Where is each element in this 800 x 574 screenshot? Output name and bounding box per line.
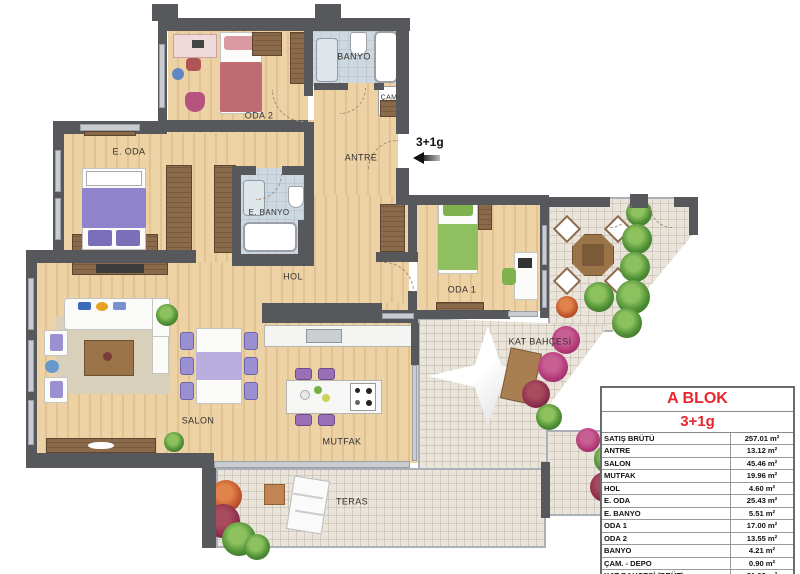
window: [508, 311, 538, 317]
plant: [164, 432, 184, 452]
armchair-seat: [50, 381, 63, 398]
row-label: KAT BAHÇESİ (BRÜT): [602, 570, 731, 574]
wall: [408, 205, 417, 254]
table-runner: [196, 352, 242, 380]
wardrobe: [478, 202, 492, 230]
room-label-kat-bahcesi: KAT BAHÇESİ: [508, 338, 571, 347]
row-label: ODA 1: [602, 520, 731, 532]
bush: [622, 224, 652, 254]
dining-chair: [180, 357, 194, 375]
row-value: 19.96 m²: [731, 470, 794, 482]
wall: [158, 18, 410, 31]
stool: [295, 368, 312, 380]
stool: [295, 414, 312, 426]
room-label-e-oda: E. ODA: [113, 148, 146, 157]
row-value: 13.12 m²: [731, 445, 794, 457]
wall: [202, 468, 216, 548]
armchair-seat: [50, 334, 63, 351]
armchair-pink: [185, 92, 205, 112]
table-row: MUTFAK19.96 m²: [602, 470, 793, 482]
table-row: ANTRE13.12 m²: [602, 445, 793, 457]
wall: [541, 462, 550, 518]
cushion: [116, 230, 140, 246]
row-value: 13.55 m²: [731, 532, 794, 544]
dining-chair: [180, 332, 194, 350]
window: [28, 340, 34, 392]
cooktop: [350, 383, 376, 411]
room-label-oda2: ODA 2: [245, 112, 274, 121]
table-row: HOL4.60 m²: [602, 482, 793, 494]
burner: [355, 388, 360, 393]
row-label: E. BANYO: [602, 507, 731, 519]
burner: [366, 400, 372, 406]
window: [55, 198, 61, 240]
shelf-unit: [152, 336, 169, 374]
blanket-oda1: [438, 224, 478, 270]
sofa-cushion: [78, 302, 91, 310]
blanket-oda2: [220, 62, 262, 112]
unit-type-title: 3+1g: [602, 412, 793, 433]
wall: [548, 197, 610, 207]
wall: [376, 252, 418, 262]
plant: [584, 282, 614, 312]
fruit: [314, 386, 322, 394]
row-value: 257.01 m²: [731, 433, 794, 445]
wall: [262, 303, 382, 323]
sideboard-decor: [88, 442, 114, 449]
row-label: ANTRE: [602, 445, 731, 457]
block-title: A BLOK: [602, 388, 793, 412]
burner: [355, 400, 360, 405]
window: [412, 365, 417, 461]
entry-arrow-trail: [424, 155, 440, 161]
wall: [232, 166, 241, 264]
room-label-salon: SALON: [182, 417, 215, 426]
room-label-mutfak: MUTFAK: [323, 438, 362, 447]
plant: [538, 352, 568, 382]
table-row: E. ODA25.43 m²: [602, 495, 793, 507]
window: [382, 313, 414, 319]
table-row: BANYO4.21 m²: [602, 545, 793, 557]
terrace-table: [264, 484, 285, 505]
row-label: BANYO: [602, 545, 731, 557]
bowl: [300, 390, 310, 400]
wall: [26, 453, 214, 468]
stool: [318, 368, 335, 380]
sliding-door: [214, 461, 410, 468]
window: [55, 150, 61, 192]
table-row: SATIŞ BRÜTÜ257.01 m²: [602, 433, 793, 445]
plant: [244, 534, 270, 560]
entry-unit-type: 3+1g: [416, 135, 444, 149]
wall: [158, 120, 308, 132]
row-label: ÇAM. - DEPO: [602, 557, 731, 569]
room-label-oda1: ODA 1: [448, 286, 477, 295]
window: [28, 400, 34, 445]
wardrobe: [252, 32, 282, 56]
window: [80, 124, 140, 131]
window: [159, 44, 165, 108]
table-row: KAT BAHÇESİ (BRÜT)31.92 m²: [602, 570, 793, 574]
terrace-area: [216, 468, 546, 548]
door-arc: [384, 262, 414, 292]
room-label-banyo: BANYO: [337, 53, 371, 62]
side-table: [45, 360, 59, 373]
wall: [298, 220, 314, 256]
window: [28, 278, 34, 330]
row-label: E. ODA: [602, 495, 731, 507]
table-decor: [103, 352, 112, 361]
window: [542, 225, 547, 265]
wall: [304, 18, 313, 96]
burner: [366, 388, 372, 394]
row-value: 4.21 m²: [731, 545, 794, 557]
toilet: [288, 186, 304, 208]
window: [542, 270, 547, 308]
wall: [630, 194, 648, 208]
wall: [411, 323, 419, 365]
wardrobe: [166, 165, 192, 253]
laptop: [192, 40, 204, 48]
plant: [156, 304, 178, 326]
room-label-teras: TERAS: [336, 498, 368, 507]
row-value: 45.46 m²: [731, 457, 794, 469]
desk-chair-green: [502, 268, 516, 285]
row-value: 17.00 m²: [731, 520, 794, 532]
table-row: E. BANYO5.51 m²: [602, 507, 793, 519]
entry-arrow-icon: [413, 152, 424, 164]
row-label: SATIŞ BRÜTÜ: [602, 433, 731, 445]
wardrobe-hol: [380, 204, 405, 252]
area-legend-table: A BLOK 3+1g SATIŞ BRÜTÜ257.01 m² ANTRE13…: [600, 386, 795, 574]
row-value: 4.60 m²: [731, 482, 794, 494]
area-table: SATIŞ BRÜTÜ257.01 m² ANTRE13.12 m² SALON…: [602, 433, 793, 574]
wall: [26, 250, 196, 263]
wall: [408, 310, 510, 319]
stool: [318, 414, 335, 426]
bathtub: [243, 222, 297, 252]
wall: [689, 197, 698, 235]
wall: [304, 166, 314, 222]
table-row: SALON45.46 m²: [602, 457, 793, 469]
bush: [620, 252, 650, 282]
pillows-e-oda: [86, 171, 142, 186]
kitchen-sink: [306, 329, 342, 343]
entry-label: 3+1g: [416, 136, 444, 148]
blanket-e-oda: [82, 188, 146, 228]
room-label-e-banyo: E. BANYO: [249, 209, 290, 217]
table-row: ÇAM. - DEPO0.90 m²: [602, 557, 793, 569]
sofa-cushion: [96, 302, 108, 311]
row-value: 31.92 m²: [731, 570, 794, 574]
row-value: 5.51 m²: [731, 507, 794, 519]
wall: [396, 18, 409, 134]
plant: [536, 404, 562, 430]
row-label: HOL: [602, 482, 731, 494]
plant: [576, 428, 600, 452]
laptop: [518, 258, 532, 268]
decor-blue: [172, 68, 184, 80]
room-label-hol: HOL: [283, 273, 303, 282]
row-value: 25.43 m²: [731, 495, 794, 507]
wall: [396, 195, 548, 205]
sofa-cushion: [113, 302, 126, 310]
bath-sink: [316, 38, 338, 82]
window-sill: [84, 131, 136, 136]
tv: [96, 264, 144, 273]
row-label: MUTFAK: [602, 470, 731, 482]
dining-chair: [244, 382, 258, 400]
table-row: ODA 117.00 m²: [602, 520, 793, 532]
dining-chair: [244, 357, 258, 375]
dining-chair: [180, 382, 194, 400]
floor-plan-canvas: 3+1g ODA 2 BANYO ÇAM ANTRE E. ODA E. BAN…: [0, 0, 800, 574]
fruit: [322, 394, 330, 402]
row-label: ODA 2: [602, 532, 731, 544]
table-row: ODA 213.55 m²: [602, 532, 793, 544]
row-label: SALON: [602, 457, 731, 469]
wall: [232, 254, 314, 266]
garden-table-top: [582, 244, 604, 266]
cushion: [88, 230, 112, 246]
plant: [556, 296, 578, 318]
dining-chair: [244, 332, 258, 350]
row-value: 0.90 m²: [731, 557, 794, 569]
room-label-antre: ANTRE: [345, 154, 378, 163]
desk-chair: [186, 58, 201, 71]
room-label-cam: ÇAM: [381, 95, 398, 102]
bathtub: [374, 31, 398, 83]
bush: [612, 308, 642, 338]
wall: [374, 83, 384, 90]
